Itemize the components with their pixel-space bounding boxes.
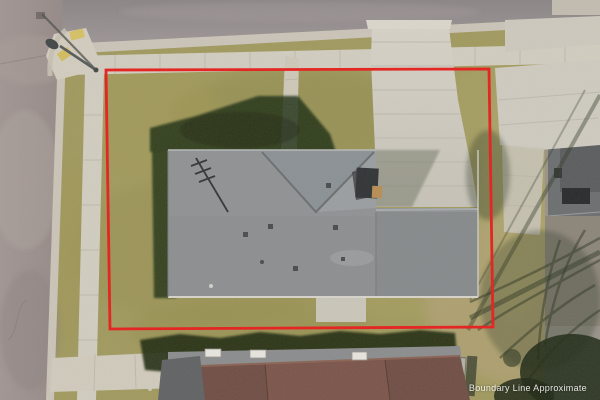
aerial-scene <box>0 0 600 400</box>
photo-grain <box>0 0 600 400</box>
aerial-photo: Boundary Line Approximate <box>0 0 600 400</box>
